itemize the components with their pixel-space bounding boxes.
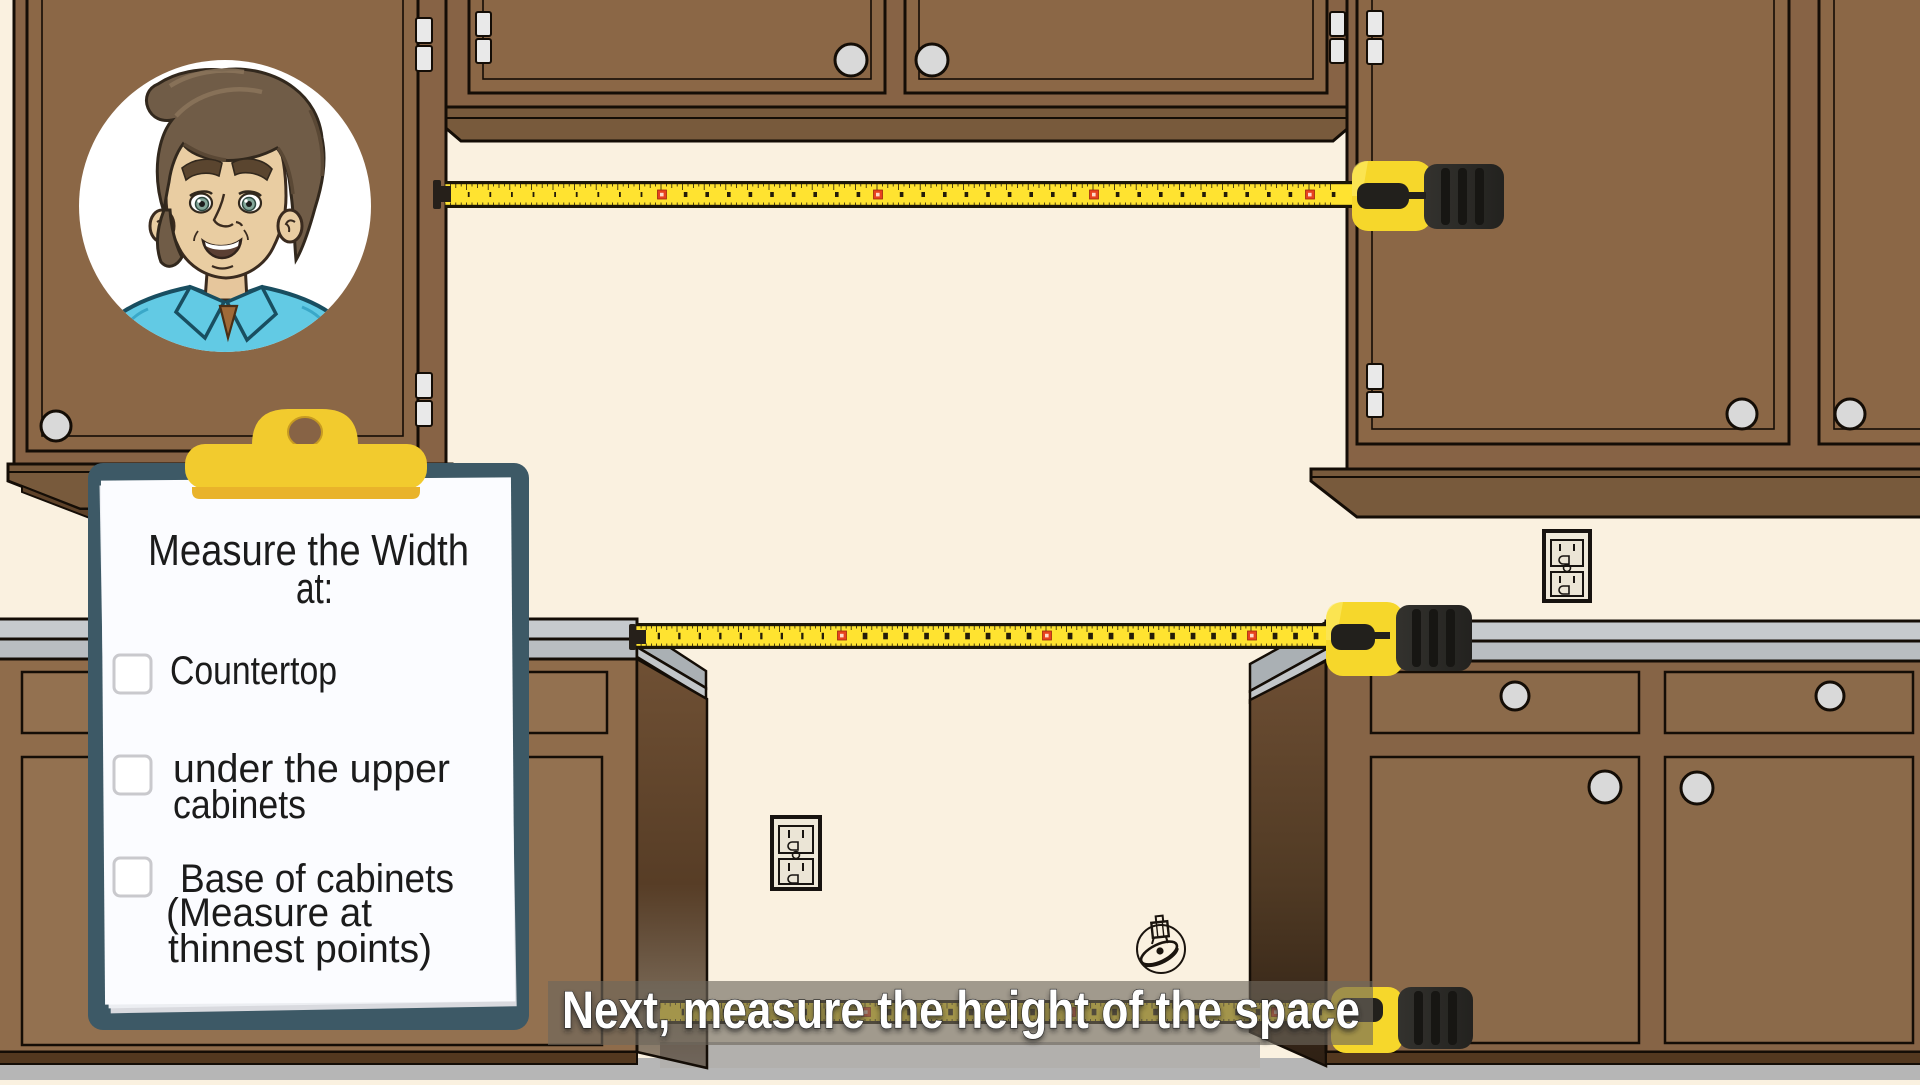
svg-text:thinnest points): thinnest points) <box>168 927 432 971</box>
svg-text:Next, measure the height of th: Next, measure the height of the space <box>562 981 1360 1040</box>
svg-text:Countertop: Countertop <box>170 649 337 693</box>
svg-text:cabinets: cabinets <box>173 783 306 827</box>
svg-text:at:: at: <box>296 564 333 613</box>
